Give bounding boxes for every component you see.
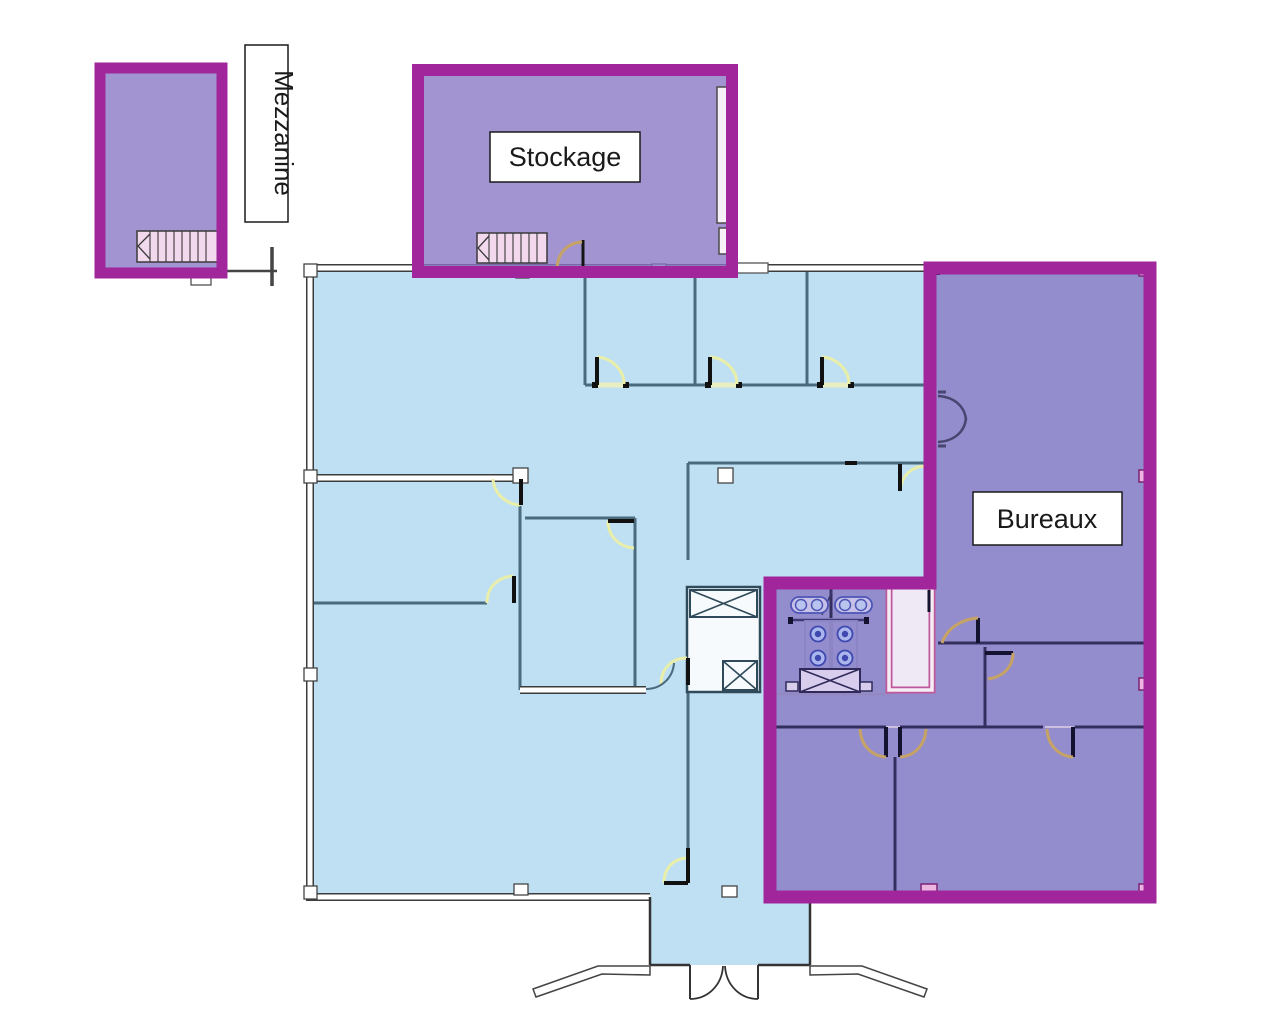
stockage-label: Stockage	[490, 132, 640, 182]
bureaux-label-text: Bureaux	[997, 504, 1098, 534]
stairwell-bureaux	[887, 585, 934, 692]
mezzanine-label: Mezzanine	[245, 45, 299, 222]
elevator-shaft	[687, 587, 760, 692]
top-window	[735, 263, 768, 273]
mezzanine-connector	[225, 247, 277, 286]
floor-plan: Stockage Bureaux Mezzanine	[0, 0, 1280, 1021]
mezzanine-label-text: Mezzanine	[269, 70, 299, 196]
bureaux-label: Bureaux	[973, 492, 1122, 545]
staircase-mezzanine	[137, 231, 218, 262]
staircase-stockage	[477, 233, 547, 263]
stockage-label-text: Stockage	[509, 142, 622, 172]
